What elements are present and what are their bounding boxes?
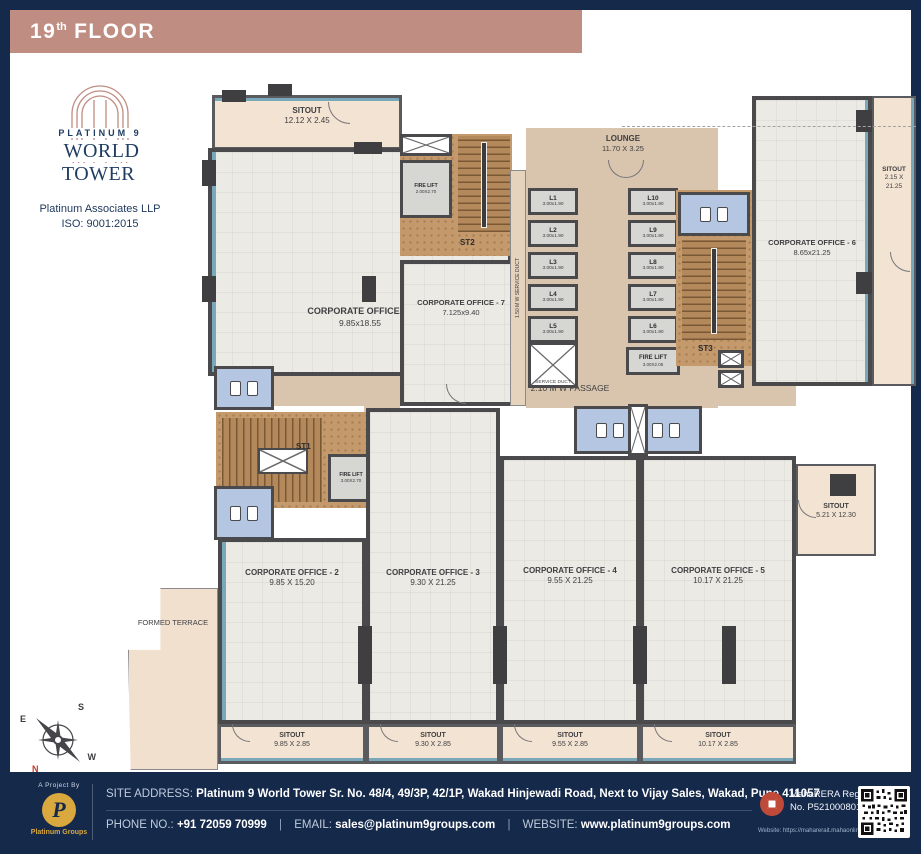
column	[202, 276, 216, 302]
stair-st3-label: ST3	[698, 344, 713, 353]
project-by-block: A Project By P Platinum Groups	[24, 782, 94, 836]
office-2-label: CORPORATE OFFICE - 29.85 X 15.20	[218, 568, 366, 589]
boundary-dashed-line	[622, 126, 916, 127]
maharera-glyph	[767, 799, 777, 809]
stair-st3-treads	[682, 240, 746, 340]
footer-divider	[92, 784, 93, 840]
washroom-left-bottom	[214, 486, 274, 540]
lift-l8: L83.00x1.90	[628, 252, 678, 279]
stair-landing	[258, 448, 308, 474]
compass: E S W N	[20, 702, 96, 778]
office-3	[366, 408, 500, 724]
page-canvas: 19th FLOOR PLATINUM 9 WORLD TOWER Platin…	[10, 10, 911, 772]
office-5-label: CORPORATE OFFICE - 510.17 X 21.25	[640, 566, 796, 587]
service-duct-vertical-label: 1.50 M W SERVICE DUCT	[510, 172, 526, 404]
lift-l10: L103.00x1.90	[628, 188, 678, 215]
column	[856, 110, 872, 132]
lift-l6: L63.00x1.90	[628, 316, 678, 343]
compass-east: E	[20, 714, 26, 724]
phone-number: +91 72059 70999	[177, 819, 267, 831]
service-duct-label: SERVICE DUCT	[524, 380, 582, 386]
stair-st2-treads	[458, 136, 510, 232]
formed-terrace-label: FORMED TERRACE	[136, 618, 210, 628]
duct-box	[628, 404, 648, 456]
contact-row: PHONE NO.: +91 72059 70999 | EMAIL: sale…	[106, 819, 731, 831]
project-by-label: A Project By	[24, 782, 94, 789]
separator: |	[279, 819, 282, 831]
column	[362, 276, 376, 302]
column	[354, 142, 382, 154]
column	[856, 272, 872, 294]
brand-name-main: WORLD TOWER	[24, 140, 176, 186]
column	[268, 84, 292, 96]
platinum-groups-name: Platinum Groups	[24, 829, 94, 836]
office-4	[500, 456, 640, 724]
brand-company: Platinum Associates LLP ISO: 9001:2015	[24, 202, 176, 233]
fire-lift-st2: FIRE LIFT2.00X2.70	[400, 160, 452, 218]
site-address-label: SITE ADDRESS:	[106, 788, 193, 800]
sitout-right	[872, 96, 916, 386]
separator: |	[507, 819, 510, 831]
stair-rail	[481, 142, 487, 228]
toilet-fixture	[247, 381, 258, 396]
site-address-rest: Sr. No. 48/4, 49/3P, 42/1P, Wakad Hinjew…	[329, 788, 820, 800]
maharera-icon	[760, 792, 784, 816]
footer: A Project By P Platinum Groups SITE ADDR…	[0, 772, 921, 854]
formed-terrace	[128, 588, 218, 770]
fire-lift-main: FIRE LIFT3.00X2.05	[626, 347, 680, 375]
lounge-label: LOUNGE11.70 X 3.25	[550, 134, 696, 154]
sitout-top-label: SITOUT12.12 X 2.45	[212, 106, 402, 127]
qr-code	[858, 786, 910, 838]
column	[202, 160, 216, 186]
toilet-fixture	[717, 207, 728, 222]
stair-st2-label: ST2	[460, 238, 475, 247]
lift-l9: L93.00x1.90	[628, 220, 678, 247]
toilet-fixture	[613, 423, 624, 438]
column	[722, 626, 736, 684]
toilet-fixture	[247, 506, 258, 521]
duct-box	[400, 134, 452, 156]
lift-l4: L43.00x1.90	[528, 284, 578, 311]
floor-title-band: 19th FLOOR	[10, 10, 582, 53]
washroom-left-top	[214, 366, 274, 410]
toilet-fixture	[669, 423, 680, 438]
duct-box	[718, 350, 744, 368]
washroom-st3	[678, 192, 750, 236]
site-address-name: Platinum 9 World Tower	[196, 788, 326, 800]
lift-l5: L53.00x1.90	[528, 316, 578, 343]
stair-rail	[711, 248, 717, 334]
sitout-right-label: SITOUT2.15 X 21.25	[872, 166, 916, 191]
column	[222, 90, 246, 102]
site-address-row: SITE ADDRESS: Platinum 9 World Tower Sr.…	[106, 788, 820, 800]
column	[830, 474, 856, 496]
toilet-fixture	[700, 207, 711, 222]
qr-pattern	[861, 789, 907, 835]
lift-l3: L33.00x1.90	[528, 252, 578, 279]
column	[493, 626, 507, 684]
office-3-label: CORPORATE OFFICE - 39.30 X 21.25	[366, 568, 500, 589]
lift-l2: L23.00x1.90	[528, 220, 578, 247]
website-label: WEBSITE:	[523, 819, 578, 831]
phone-label: PHONE NO.:	[106, 819, 174, 831]
toilet-fixture	[652, 423, 663, 438]
footer-rule	[106, 810, 752, 811]
stair-st1-label: ST1	[296, 442, 311, 451]
floor-title: 19th FLOOR	[30, 20, 155, 44]
floor-ordinal: th	[56, 21, 66, 33]
compass-west: W	[88, 752, 97, 762]
company-name: Platinum Associates LLP	[24, 202, 176, 217]
website-value: www.platinum9groups.com	[581, 819, 731, 831]
company-iso: ISO: 9001:2015	[24, 217, 176, 232]
compass-south: S	[78, 702, 84, 712]
column	[633, 626, 647, 684]
office-5	[640, 456, 796, 724]
email-value: sales@platinum9groups.com	[335, 819, 495, 831]
column	[358, 626, 372, 684]
office-7-label: CORPORATE OFFICE - 77.125x9.40	[400, 298, 522, 318]
lift-l7: L73.00x1.90	[628, 284, 678, 311]
office-4-label: CORPORATE OFFICE - 49.55 X 21.25	[500, 566, 640, 587]
lift-l1: L13.00x1.90	[528, 188, 578, 215]
duct-box	[718, 370, 744, 388]
platinum-groups-logo-icon: P	[42, 793, 76, 827]
toilet-fixture	[230, 506, 241, 521]
toilet-fixture	[596, 423, 607, 438]
email-label: EMAIL:	[294, 819, 332, 831]
brand-name-top: PLATINUM 9	[24, 128, 176, 138]
office-2	[218, 538, 366, 724]
office-6-label: CORPORATE OFFICE - 68.65x21.25	[752, 238, 872, 258]
toilet-fixture	[230, 381, 241, 396]
